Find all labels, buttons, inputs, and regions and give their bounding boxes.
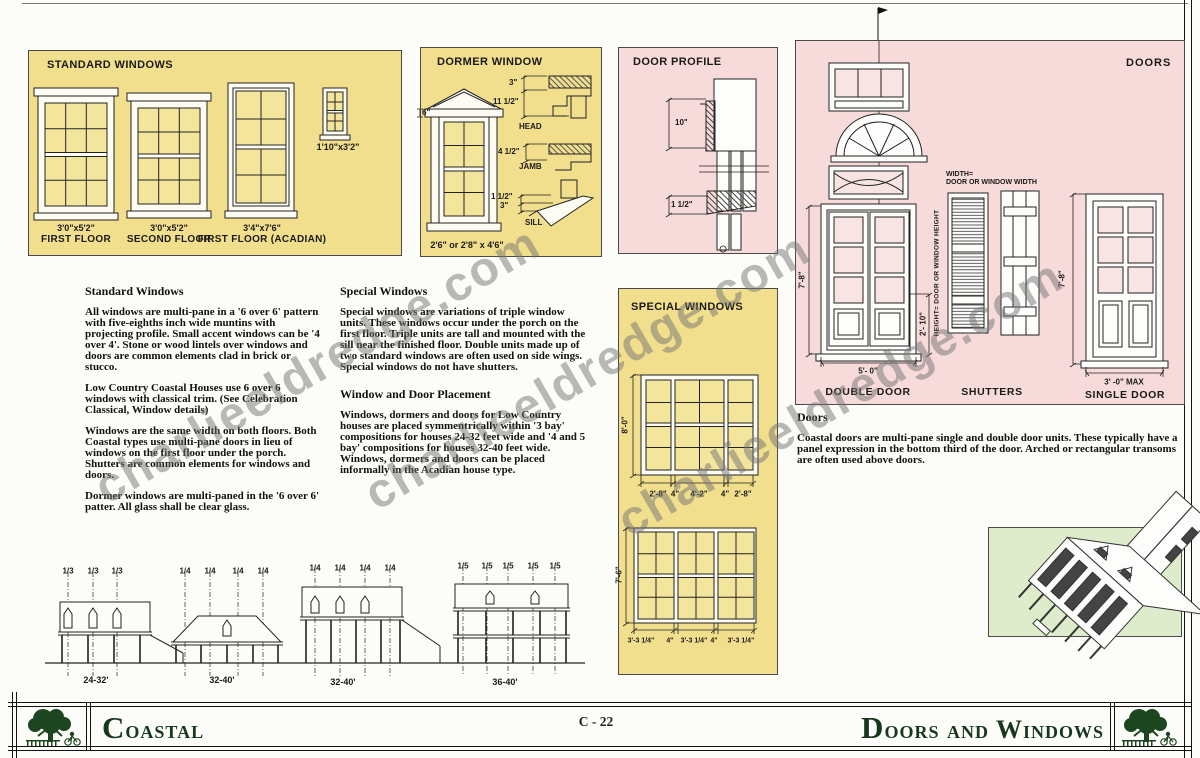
jamb-dim-1: 4 1/2" [498,147,520,156]
sill-dim-2: 3" [500,201,508,210]
bay-fraction: 1/5 [457,562,468,571]
jamb-label: JAMB [519,162,542,171]
single-door-width-dim: 3' -0" MAX [1104,378,1143,387]
pattern-book-sheet: STANDARD WINDOWS [0,0,1200,758]
window-floor-label: FIRST FLOOR [41,234,111,245]
dim-label: 4" [666,638,673,645]
window-size-label: 3'4"x7'6" [243,223,281,233]
head-dim-2: 11 1/2" [493,97,519,106]
dim-label: 4" [710,638,717,645]
window-size-label: 3'0"x5'2" [150,223,188,233]
height-note: HEIGHT= DOOR OR WINDOW HEIGHT [934,210,941,337]
dim-label: 4" [721,490,729,499]
dim-label: 3'-3 1/4" [681,638,708,645]
single-door-label: SINGLE DOOR [1085,389,1165,401]
footer-divider [86,702,87,751]
doors-panel: DOORS [795,40,1185,405]
section-heading: Special Windows [340,286,590,297]
bay-fraction: 1/3 [87,567,98,576]
bay-fraction: 1/4 [309,564,320,573]
elevation-width-label: 32-40' [209,675,234,685]
standard-windows-panel: STANDARD WINDOWS [28,50,402,256]
bay-fraction: 1/4 [334,564,345,573]
bay-fraction: 1/5 [502,562,513,571]
sill-label: SILL [525,218,542,227]
bay-fraction: 1/4 [384,564,395,573]
footer-rule [8,746,1192,747]
centerline-flag [869,6,891,42]
paragraph: Dormer windows are multi-paned in the '6… [85,491,322,513]
standard-windows-section: Standard Windows All windows are multi-p… [85,286,322,523]
footer-series-title: Coastal [102,710,204,746]
dormer-overhang-dim: 6" [422,108,430,117]
triple-standard-height-dim: 7'-6" [615,566,624,583]
bay-fraction: 1/5 [527,562,538,571]
footer-page-title: Doors and Windows [861,710,1104,746]
bay-fraction: 1/4 [359,564,370,573]
window-size-label: 3'0"x5'2" [57,223,95,233]
elevation-width-label: 36-40' [492,677,517,687]
bay-fraction: 1/4 [204,567,215,576]
window-size-label: 1'10"x3'2" [317,142,360,152]
width-note-line1: WIDTH= [946,171,973,178]
section-heading: Standard Windows [85,286,322,297]
footer-rule [8,702,1192,703]
footer-sheet-number: C - 22 [579,714,614,730]
dormer-size-caption: 2'6" or 2'8" x 4'6" [430,240,503,250]
sill-dim-1: 1 1/2" [491,192,513,201]
dim-label: 4'-2" [690,490,707,499]
isometric-house-drawing [1008,478,1198,693]
footer-divider [90,702,91,751]
head-dim-1: 3" [509,78,517,87]
sheet-top-rule [22,3,1188,4]
footer-divider [1110,702,1111,751]
tree-logo [24,708,82,746]
paragraph: Windows are the same width on both floor… [85,426,322,481]
special-windows-section: Special Windows Special windows are vari… [340,286,590,486]
footer-rule [8,750,1192,751]
special-windows-panel: SPECIAL WINDOWS [618,288,778,675]
footer-rule [8,706,1192,707]
bay-fraction: 1/4 [179,567,190,576]
shutters-label: SHUTTERS [961,386,1022,398]
paragraph: Special windows are variations of triple… [340,307,590,373]
width-note-line2: DOOR OR WINDOW WIDTH [946,179,1037,186]
dim-label: 2'-8" [649,490,666,499]
dim-label: 4" [671,490,679,499]
double-door-width-dim: 5'- 0" [858,367,877,376]
double-door-panel-dim: 2'- 10" [919,312,928,336]
bay-fraction: 1/4 [257,567,268,576]
elevation-width-label: 24-32' [83,675,108,685]
paragraph: Low Country Coastal Houses use 6 over 6 … [85,383,322,416]
section-heading: Doors [797,412,1181,423]
dim-label: 3'-3 1/4" [728,638,755,645]
bay-fraction: 1/3 [111,567,122,576]
special-windows-drawing [619,289,779,676]
elevation-width-label: 32-40' [330,677,355,687]
door-profile-panel: DOOR PROFILE [618,47,778,254]
dim-label: 2'-8" [734,490,751,499]
single-door-height-dim: 7'-8" [1058,270,1067,287]
doors-section: Doors Coastal doors are multi-pane singl… [797,412,1181,476]
double-door-height-dim: 7'-8" [798,271,807,288]
double-door-label: DOUBLE DOOR [825,386,910,398]
profile-dim-top: 10" [675,118,688,127]
paragraph: Coastal doors are multi-pane single and … [797,433,1181,466]
tree-logo [1120,708,1178,746]
footer-divider [1114,702,1115,751]
profile-dim-bottom: 1 1/2" [671,200,693,209]
doors-drawing [796,41,1186,406]
section-heading: Window and Door Placement [340,389,590,400]
bay-fraction: 1/5 [481,562,492,571]
dim-label: 3'-3 1/4" [628,638,655,645]
paragraph: All windows are multi-pane in a '6 over … [85,307,322,373]
paragraph: Windows, dormers and doors for Low Count… [340,410,590,476]
triple-tall-height-dim: 8'-0" [621,416,630,433]
bay-fraction: 1/3 [62,567,73,576]
elevation-diagrams [40,556,590,696]
head-label: HEAD [519,122,542,131]
dormer-window-panel: DORMER WINDOW [420,47,602,257]
window-floor-label: FIRST FLOOR (ACADIAN) [198,234,327,245]
door-profile-drawing [619,48,779,255]
bay-fraction: 1/4 [232,567,243,576]
bay-fraction: 1/5 [549,562,560,571]
